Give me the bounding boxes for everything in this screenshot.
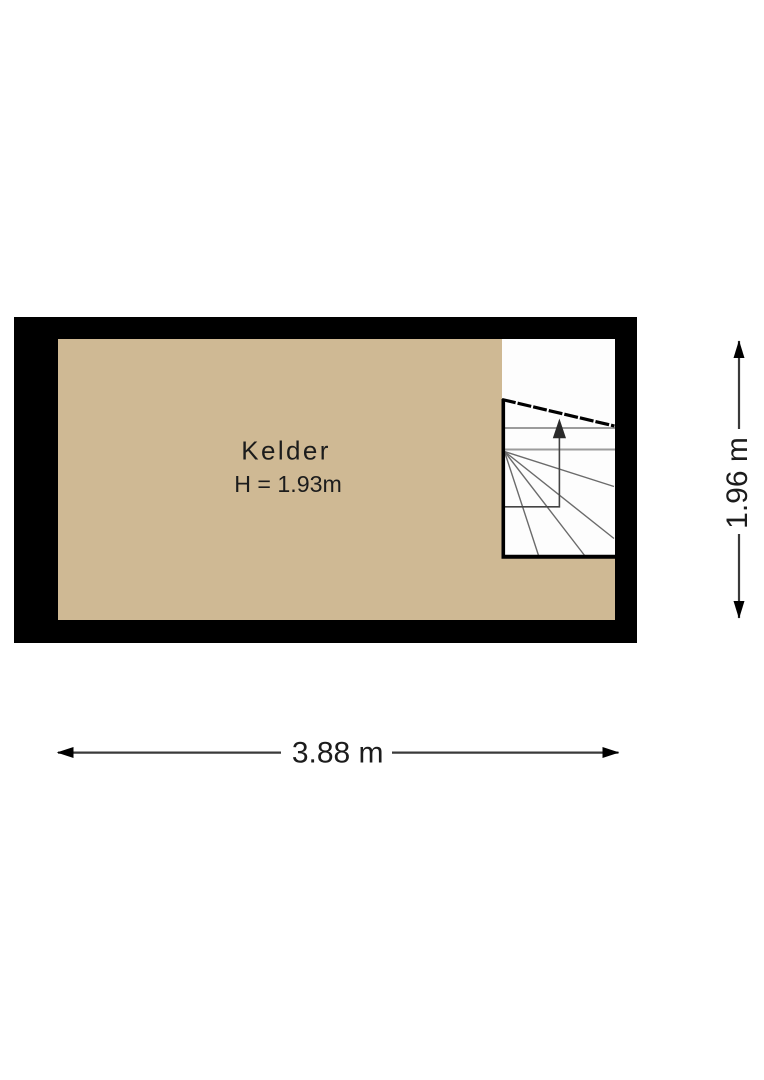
svg-text:H = 1.93m: H = 1.93m bbox=[234, 471, 342, 497]
svg-text:Kelder: Kelder bbox=[241, 436, 331, 466]
svg-text:3.88 m: 3.88 m bbox=[292, 737, 384, 770]
svg-text:1.96 m: 1.96 m bbox=[721, 437, 754, 529]
